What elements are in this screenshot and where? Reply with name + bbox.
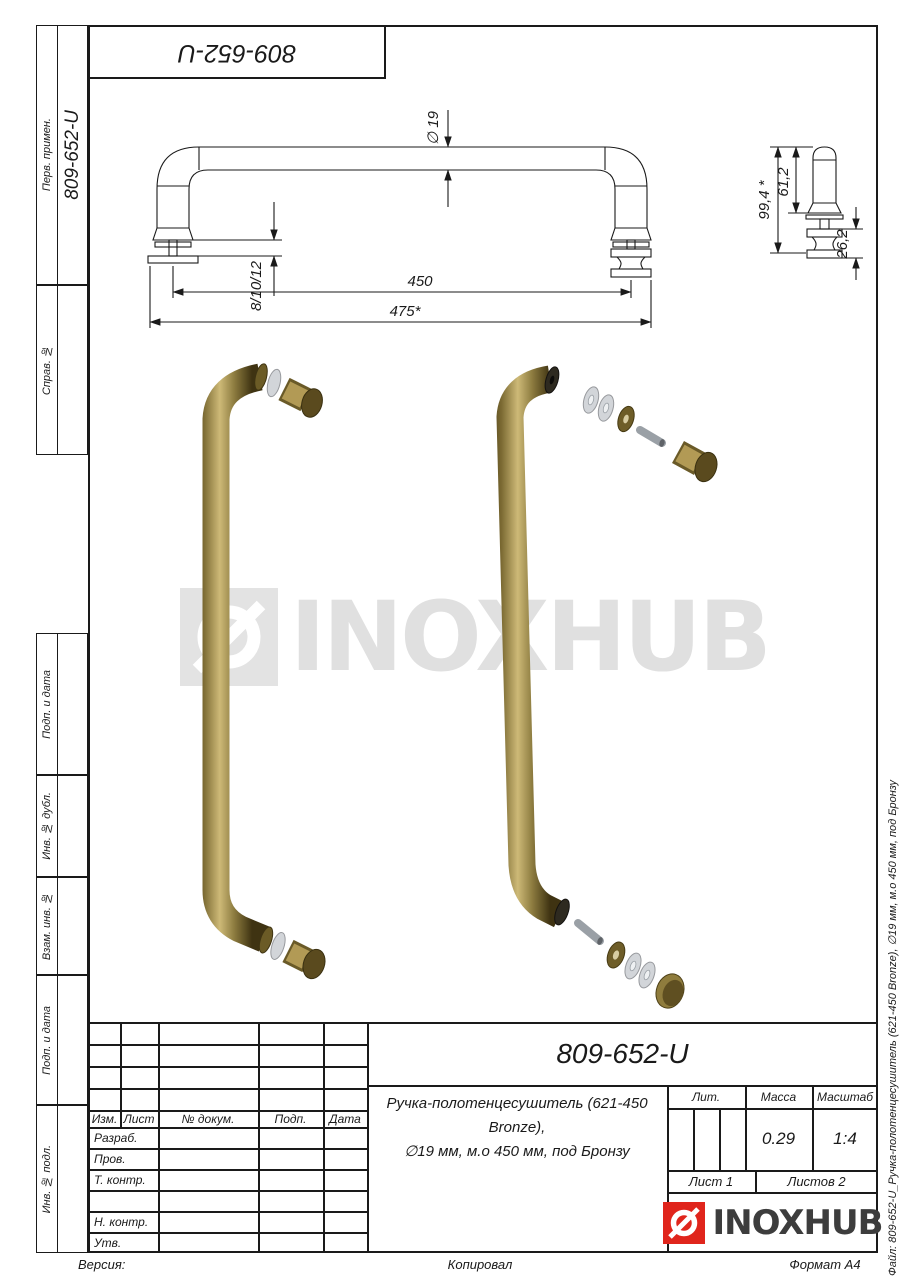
col-dokum: № докум. <box>158 1110 258 1127</box>
dim-diameter: ∅ 19 <box>425 110 442 145</box>
inoxhub-logo-icon <box>663 1202 705 1244</box>
strip-cell-sprav: Справ. № <box>36 285 88 455</box>
corner-stamp: 809-652-U <box>88 25 386 79</box>
row-utv: Утв. <box>89 1232 157 1253</box>
dim-upper-height: 61,2 <box>775 167 792 197</box>
col-list: Лист <box>120 1110 158 1127</box>
logo-cell: INOXHUB <box>667 1192 878 1253</box>
handle-render-assembled <box>216 363 329 982</box>
row-prov: Пров. <box>89 1148 157 1169</box>
inoxhub-logo: INOXHUB <box>663 1202 883 1244</box>
part-name: Ручка-полотенцесушитель (621-450 Bronze)… <box>367 1092 667 1164</box>
dim-overall-height: 99,4 * <box>756 179 773 219</box>
designation: 809-652-U <box>367 1022 878 1085</box>
dim-overall-length: 475* <box>390 303 422 320</box>
strip-cell-perv-primen: Перв. примен. 809-652-U <box>36 25 88 285</box>
lit-label: Лит. <box>667 1085 745 1108</box>
listov-value: Листов 2 <box>755 1170 878 1192</box>
masshtab-value: 1:4 <box>812 1108 878 1170</box>
strip-label-perv-primen: Перв. примен. <box>41 118 53 191</box>
row-t-kontr: Т. контр. <box>89 1169 157 1190</box>
file-label: Файл: 809-652-U_Ручка-полотенцесушитель … <box>886 756 899 1276</box>
part-name-line2: ∅19 мм, м.о 450 мм, под Бронзу <box>367 1140 667 1164</box>
dim-glass-thickness: 8/10/12 <box>248 260 265 311</box>
strip-label-podp-data-1: Подп. и дата <box>41 670 53 739</box>
strip-label-inv-podl: Инв. № подл. <box>41 1145 53 1213</box>
handle-render-exploded <box>510 365 721 1012</box>
renders <box>150 345 730 1017</box>
version-label: Версия: <box>78 1257 125 1272</box>
corner-stamp-text: 809-652-U <box>178 38 296 67</box>
strip-cell-podp-data-2: Подп. и дата <box>36 975 88 1105</box>
strip-cell-inv-podl: Инв. № подл. <box>36 1105 88 1253</box>
strip-cell-inv-dubl: Инв. № дубл. <box>36 775 88 877</box>
format-label: Формат А4 <box>760 1257 890 1272</box>
massa-value: 0.29 <box>745 1108 812 1170</box>
strip-label-inv-dubl: Инв. № дубл. <box>41 792 53 860</box>
side-view: 99,4 * 61,2 26,2 <box>756 147 863 280</box>
col-izm: Изм. <box>89 1110 120 1127</box>
inoxhub-logo-text: INOXHUB <box>713 1203 883 1243</box>
list-value: Лист 1 <box>667 1170 755 1192</box>
front-view: ∅ 19 8/10/12 450 475* <box>148 110 651 328</box>
drawing-sheet: Перв. примен. 809-652-U Справ. № Подп. и… <box>0 0 905 1280</box>
col-data: Дата <box>323 1110 367 1127</box>
orthographic-views: ∅ 19 8/10/12 450 475* <box>90 90 880 345</box>
strip-value-perv-primen: 809-652-U <box>62 110 84 200</box>
masshtab-label: Масштаб <box>812 1085 878 1108</box>
row-razrab: Разраб. <box>89 1127 157 1148</box>
strip-label-sprav: Справ. № <box>41 345 53 395</box>
part-name-line1: Ручка-полотенцесушитель (621-450 Bronze)… <box>367 1092 667 1140</box>
dim-knob-height: 26,2 <box>834 229 851 260</box>
strip-cell-vzam-inv: Взам. инв. № <box>36 877 88 975</box>
strip-cell-podp-data-1: Подп. и дата <box>36 633 88 775</box>
dim-mounting-distance: 450 <box>407 273 433 290</box>
strip-label-podp-data-2: Подп. и дата <box>41 1006 53 1075</box>
row-n-kontr: Н. контр. <box>89 1211 157 1232</box>
col-podp: Подп. <box>258 1110 323 1127</box>
copied-label: Копировал <box>380 1257 580 1272</box>
massa-label: Масса <box>745 1085 812 1108</box>
strip-label-vzam-inv: Взам. инв. № <box>41 892 53 960</box>
